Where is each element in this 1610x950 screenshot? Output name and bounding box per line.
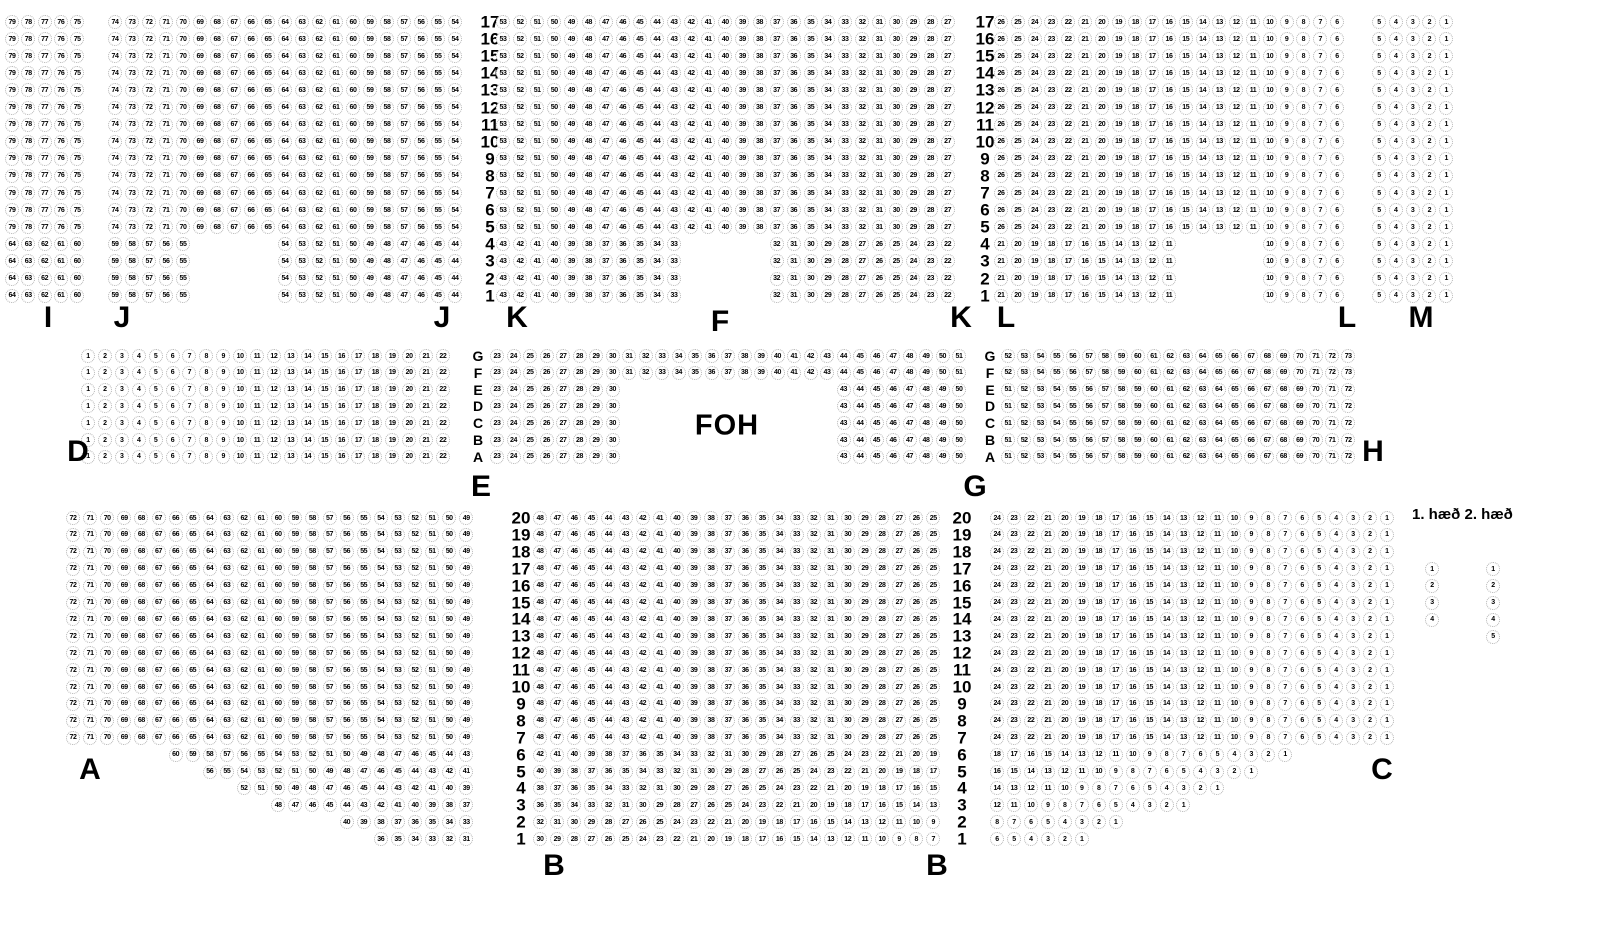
seat[interactable]: 56 xyxy=(414,152,428,166)
seat[interactable]: 46 xyxy=(567,562,581,576)
seat[interactable]: 28 xyxy=(838,272,852,286)
seat[interactable]: 46 xyxy=(305,798,319,812)
seat[interactable]: 22 xyxy=(1061,101,1075,115)
seat[interactable]: 19 xyxy=(385,366,399,380)
seat[interactable]: 30 xyxy=(889,32,903,46)
seat[interactable]: 31 xyxy=(824,596,838,610)
seat[interactable]: 27 xyxy=(892,714,906,728)
seat[interactable]: 13 xyxy=(1212,118,1226,132)
seat[interactable]: 58 xyxy=(380,101,394,115)
seat[interactable]: 63 xyxy=(1179,366,1193,380)
seat[interactable]: 4 xyxy=(1389,186,1403,200)
seat[interactable]: 41 xyxy=(653,629,667,643)
seat[interactable]: 63 xyxy=(295,169,309,183)
seat[interactable]: 70 xyxy=(176,118,190,132)
seat[interactable]: 48 xyxy=(903,366,917,380)
seat[interactable]: 44 xyxy=(442,748,456,762)
seat[interactable]: 3 xyxy=(1406,15,1420,29)
seat[interactable]: 48 xyxy=(919,383,933,397)
seat[interactable]: 46 xyxy=(616,15,630,29)
seat[interactable]: 3 xyxy=(1406,118,1420,132)
seat[interactable]: 28 xyxy=(875,612,889,626)
seat[interactable]: 59 xyxy=(363,169,377,183)
seat[interactable]: 65 xyxy=(186,646,200,660)
seat[interactable]: 9 xyxy=(1280,186,1294,200)
seat[interactable]: 13 xyxy=(1212,152,1226,166)
seat[interactable]: 43 xyxy=(837,416,851,430)
seat[interactable]: 69 xyxy=(117,680,131,694)
seat[interactable]: 8 xyxy=(199,399,213,413)
seat[interactable]: 24 xyxy=(507,399,521,413)
seat[interactable]: 31 xyxy=(824,731,838,745)
seat[interactable]: 6 xyxy=(1295,731,1309,745)
seat[interactable]: 47 xyxy=(397,289,411,303)
seat[interactable]: 48 xyxy=(582,203,596,217)
seat[interactable]: 79 xyxy=(5,186,19,200)
seat[interactable]: 6 xyxy=(1330,237,1344,251)
seat[interactable]: 67 xyxy=(227,186,241,200)
seat[interactable]: 10 xyxy=(1263,289,1277,303)
seat[interactable]: 11 xyxy=(1246,66,1260,80)
seat[interactable]: 63 xyxy=(295,15,309,29)
seat[interactable]: 1 xyxy=(1210,781,1224,795)
seat[interactable]: 45 xyxy=(584,663,598,677)
seat[interactable]: 37 xyxy=(721,545,735,559)
seat[interactable]: 18 xyxy=(1044,254,1058,268)
seat[interactable]: 55 xyxy=(1050,349,1064,363)
seat[interactable]: 25 xyxy=(926,545,940,559)
seat[interactable]: 20 xyxy=(402,450,416,464)
seat[interactable]: 25 xyxy=(926,579,940,593)
seat[interactable]: 66 xyxy=(244,66,258,80)
seat[interactable]: 18 xyxy=(1128,220,1142,234)
seat[interactable]: 28 xyxy=(875,545,889,559)
seat[interactable]: 73 xyxy=(125,101,139,115)
seat[interactable]: 69 xyxy=(117,511,131,525)
seat[interactable]: 38 xyxy=(533,781,547,795)
seat[interactable]: 58 xyxy=(305,731,319,745)
seat[interactable]: 31 xyxy=(653,781,667,795)
seat[interactable]: 50 xyxy=(442,545,456,559)
seat[interactable]: 11 xyxy=(250,383,264,397)
seat[interactable]: 68 xyxy=(1276,399,1290,413)
seat[interactable]: 14 xyxy=(1024,765,1038,779)
seat[interactable]: 28 xyxy=(875,596,889,610)
seat[interactable]: 13 xyxy=(1212,32,1226,46)
seat[interactable]: 10 xyxy=(875,832,889,846)
seat[interactable]: 36 xyxy=(738,528,752,542)
seat[interactable]: 54 xyxy=(448,49,462,63)
seat[interactable]: 37 xyxy=(721,629,735,643)
seat[interactable]: 72 xyxy=(1341,416,1355,430)
seat[interactable]: 31 xyxy=(872,32,886,46)
seat[interactable]: 39 xyxy=(687,714,701,728)
seat[interactable]: 46 xyxy=(616,135,630,149)
seat[interactable]: 25 xyxy=(926,511,940,525)
seat[interactable]: 10 xyxy=(1227,562,1241,576)
seat[interactable]: 22 xyxy=(1061,66,1075,80)
seat[interactable]: 39 xyxy=(735,49,749,63)
seat[interactable]: 18 xyxy=(875,781,889,795)
seat[interactable]: 7 xyxy=(1313,32,1327,46)
seat[interactable]: 49 xyxy=(936,450,950,464)
seat[interactable]: 19 xyxy=(1112,15,1126,29)
seat[interactable]: 74 xyxy=(108,118,122,132)
seat[interactable]: 64 xyxy=(5,237,19,251)
seat[interactable]: 1 xyxy=(1439,203,1453,217)
seat[interactable]: 9 xyxy=(216,383,230,397)
seat[interactable]: 49 xyxy=(459,714,473,728)
seat[interactable]: 16 xyxy=(335,349,349,363)
seat[interactable]: 55 xyxy=(431,32,445,46)
seat[interactable]: 8 xyxy=(1296,289,1310,303)
seat[interactable]: 36 xyxy=(738,697,752,711)
seat[interactable]: 55 xyxy=(357,528,371,542)
seat[interactable]: 35 xyxy=(804,83,818,97)
seat[interactable]: 25 xyxy=(1011,49,1025,63)
seat[interactable]: 2 xyxy=(1422,49,1436,63)
seat[interactable]: 72 xyxy=(142,203,156,217)
seat[interactable]: 30 xyxy=(533,832,547,846)
seat[interactable]: 2 xyxy=(1363,511,1377,525)
seat[interactable]: 75 xyxy=(70,220,84,234)
seat[interactable]: 64 xyxy=(278,15,292,29)
seat[interactable]: 34 xyxy=(821,186,835,200)
seat[interactable]: 50 xyxy=(442,697,456,711)
seat[interactable]: 7 xyxy=(1313,135,1327,149)
seat[interactable]: 41 xyxy=(653,511,667,525)
seat[interactable]: 18 xyxy=(1128,66,1142,80)
seat[interactable]: 7 xyxy=(1313,169,1327,183)
seat[interactable]: 32 xyxy=(855,169,869,183)
seat[interactable]: 15 xyxy=(1095,289,1109,303)
seat[interactable]: 11 xyxy=(1210,714,1224,728)
seat[interactable]: 14 xyxy=(1112,272,1126,286)
seat[interactable]: 76 xyxy=(54,169,68,183)
seat[interactable]: 47 xyxy=(599,203,613,217)
seat[interactable]: 42 xyxy=(684,203,698,217)
seat[interactable]: 31 xyxy=(824,680,838,694)
seat[interactable]: 45 xyxy=(870,399,884,413)
seat[interactable]: 54 xyxy=(1033,349,1047,363)
seat[interactable]: 2 xyxy=(98,433,112,447)
seat[interactable]: 27 xyxy=(892,545,906,559)
seat[interactable]: 44 xyxy=(601,680,615,694)
seat[interactable]: 44 xyxy=(650,15,664,29)
seat[interactable]: 62 xyxy=(312,220,326,234)
seat[interactable]: 1 xyxy=(1380,545,1394,559)
seat[interactable]: 28 xyxy=(924,152,938,166)
seat[interactable]: 8 xyxy=(199,349,213,363)
seat[interactable]: 78 xyxy=(21,152,35,166)
seat[interactable]: 72 xyxy=(66,596,80,610)
seat[interactable]: 62 xyxy=(237,562,251,576)
seat[interactable]: 23 xyxy=(653,832,667,846)
seat[interactable]: 68 xyxy=(210,101,224,115)
seat[interactable]: 74 xyxy=(108,203,122,217)
seat[interactable]: 45 xyxy=(853,366,867,380)
seat[interactable]: 52 xyxy=(408,697,422,711)
seat[interactable]: 72 xyxy=(142,169,156,183)
seat[interactable]: 33 xyxy=(838,49,852,63)
seat[interactable]: 9 xyxy=(1109,765,1123,779)
seat[interactable]: 58 xyxy=(380,169,394,183)
seat[interactable]: 32 xyxy=(704,748,718,762)
seat[interactable]: 8 xyxy=(1126,765,1140,779)
seat[interactable]: 41 xyxy=(701,32,715,46)
seat[interactable]: 18 xyxy=(368,433,382,447)
seat[interactable]: 51 xyxy=(530,169,544,183)
seat[interactable]: 68 xyxy=(134,511,148,525)
seat[interactable]: 52 xyxy=(513,220,527,234)
seat[interactable]: 31 xyxy=(824,663,838,677)
seat[interactable]: 49 xyxy=(919,366,933,380)
seat[interactable]: 33 xyxy=(838,152,852,166)
seat[interactable]: 20 xyxy=(402,383,416,397)
seat[interactable]: 47 xyxy=(599,49,613,63)
seat[interactable]: 22 xyxy=(807,781,821,795)
seat[interactable]: 67 xyxy=(152,596,166,610)
seat[interactable]: 63 xyxy=(295,118,309,132)
seat[interactable]: 15 xyxy=(1143,612,1157,626)
seat[interactable]: 9 xyxy=(1280,203,1294,217)
seat[interactable]: 21 xyxy=(1078,220,1092,234)
seat[interactable]: 48 xyxy=(582,118,596,132)
seat[interactable]: 17 xyxy=(1109,596,1123,610)
seat[interactable]: 5 xyxy=(1007,832,1021,846)
seat[interactable]: 32 xyxy=(807,562,821,576)
seat[interactable]: 5 xyxy=(1312,663,1326,677)
seat[interactable]: 27 xyxy=(941,220,955,234)
seat[interactable]: 64 xyxy=(203,731,217,745)
seat[interactable]: 62 xyxy=(312,186,326,200)
seat[interactable]: 26 xyxy=(540,366,554,380)
seat[interactable]: 11 xyxy=(1246,135,1260,149)
seat[interactable]: 12 xyxy=(1024,781,1038,795)
seat[interactable]: 20 xyxy=(1095,15,1109,29)
seat[interactable]: 4 xyxy=(1227,748,1241,762)
seat[interactable]: 57 xyxy=(397,169,411,183)
seat[interactable]: 24 xyxy=(670,815,684,829)
seat[interactable]: 35 xyxy=(804,152,818,166)
seat[interactable]: 22 xyxy=(1061,32,1075,46)
seat[interactable]: 51 xyxy=(1001,450,1015,464)
seat[interactable]: 55 xyxy=(431,66,445,80)
seat[interactable]: 72 xyxy=(66,714,80,728)
seat[interactable]: 54 xyxy=(448,220,462,234)
seat[interactable]: 52 xyxy=(237,781,251,795)
seat[interactable]: 44 xyxy=(650,220,664,234)
seat[interactable]: 28 xyxy=(875,579,889,593)
seat[interactable]: 14 xyxy=(1112,237,1126,251)
seat[interactable]: 32 xyxy=(807,663,821,677)
seat[interactable]: 52 xyxy=(513,49,527,63)
seat[interactable]: 34 xyxy=(821,15,835,29)
seat[interactable]: 7 xyxy=(1109,781,1123,795)
seat[interactable]: 60 xyxy=(1147,433,1161,447)
seat[interactable]: 49 xyxy=(357,748,371,762)
seat[interactable]: 63 xyxy=(295,83,309,97)
seat[interactable]: 71 xyxy=(159,152,173,166)
seat[interactable]: 38 xyxy=(738,349,752,363)
seat[interactable]: 70 xyxy=(1293,366,1307,380)
seat[interactable]: 1 xyxy=(1439,101,1453,115)
seat[interactable]: 47 xyxy=(550,731,564,745)
seat[interactable]: 77 xyxy=(38,32,52,46)
seat[interactable]: 38 xyxy=(753,220,767,234)
seat[interactable]: 75 xyxy=(70,66,84,80)
seat[interactable]: 65 xyxy=(186,528,200,542)
seat[interactable]: 17 xyxy=(1109,646,1123,660)
seat[interactable]: 22 xyxy=(1061,15,1075,29)
seat[interactable]: 48 xyxy=(582,49,596,63)
seat[interactable]: 49 xyxy=(564,186,578,200)
seat[interactable]: 70 xyxy=(100,562,114,576)
seat[interactable]: 78 xyxy=(21,118,35,132)
seat[interactable]: 60 xyxy=(346,152,360,166)
seat[interactable]: 67 xyxy=(1260,450,1274,464)
seat[interactable]: 55 xyxy=(176,254,190,268)
seat[interactable]: 30 xyxy=(889,135,903,149)
seat[interactable]: 73 xyxy=(125,220,139,234)
seat[interactable]: 35 xyxy=(804,186,818,200)
seat[interactable]: 40 xyxy=(718,169,732,183)
seat[interactable]: 15 xyxy=(1095,237,1109,251)
seat[interactable]: 35 xyxy=(755,596,769,610)
seat[interactable]: 29 xyxy=(589,450,603,464)
seat[interactable]: 61 xyxy=(329,118,343,132)
seat[interactable]: 61 xyxy=(329,169,343,183)
seat[interactable]: 34 xyxy=(772,629,786,643)
seat[interactable]: 31 xyxy=(687,765,701,779)
seat[interactable]: 27 xyxy=(556,366,570,380)
seat[interactable]: 33 xyxy=(790,545,804,559)
seat[interactable]: 76 xyxy=(54,135,68,149)
seat[interactable]: 26 xyxy=(909,731,923,745)
seat[interactable]: 33 xyxy=(838,203,852,217)
seat[interactable]: 65 xyxy=(261,135,275,149)
seat[interactable]: 18 xyxy=(1044,289,1058,303)
seat[interactable]: 1 xyxy=(1380,714,1394,728)
seat[interactable]: 15 xyxy=(318,433,332,447)
seat[interactable]: 36 xyxy=(738,612,752,626)
seat[interactable]: 36 xyxy=(738,646,752,660)
seat[interactable]: 75 xyxy=(70,186,84,200)
seat[interactable]: 51 xyxy=(329,237,343,251)
seat[interactable]: 19 xyxy=(1028,237,1042,251)
seat[interactable]: 22 xyxy=(1061,83,1075,97)
seat[interactable]: 12 xyxy=(1145,272,1159,286)
seat[interactable]: 35 xyxy=(755,663,769,677)
seat[interactable]: 45 xyxy=(431,272,445,286)
seat[interactable]: 49 xyxy=(459,731,473,745)
seat[interactable]: 48 xyxy=(533,528,547,542)
seat[interactable]: 51 xyxy=(530,186,544,200)
seat[interactable]: 33 xyxy=(667,254,681,268)
seat[interactable]: 49 xyxy=(919,349,933,363)
seat[interactable]: 23 xyxy=(755,798,769,812)
seat[interactable]: 66 xyxy=(1244,399,1258,413)
seat[interactable]: 54 xyxy=(374,629,388,643)
seat[interactable]: 41 xyxy=(530,254,544,268)
seat[interactable]: 30 xyxy=(889,203,903,217)
seat[interactable]: 14 xyxy=(1196,169,1210,183)
seat[interactable]: 28 xyxy=(567,832,581,846)
seat[interactable]: 47 xyxy=(550,697,564,711)
seat[interactable]: 19 xyxy=(385,450,399,464)
seat[interactable]: 1 xyxy=(1380,562,1394,576)
seat[interactable]: 52 xyxy=(408,545,422,559)
seat[interactable]: 38 xyxy=(704,646,718,660)
seat[interactable]: 2 xyxy=(1422,169,1436,183)
seat[interactable]: 46 xyxy=(870,366,884,380)
seat[interactable]: 72 xyxy=(66,680,80,694)
seat[interactable]: 29 xyxy=(589,366,603,380)
seat[interactable]: 18 xyxy=(841,798,855,812)
seat[interactable]: 76 xyxy=(54,152,68,166)
seat[interactable]: 43 xyxy=(619,714,633,728)
seat[interactable]: 43 xyxy=(619,562,633,576)
seat[interactable]: 42 xyxy=(684,15,698,29)
seat[interactable]: 25 xyxy=(523,450,537,464)
seat[interactable]: 1 xyxy=(1439,15,1453,29)
seat[interactable]: 55 xyxy=(1066,399,1080,413)
seat[interactable]: 42 xyxy=(513,272,527,286)
seat[interactable]: 46 xyxy=(567,646,581,660)
seat[interactable]: 50 xyxy=(346,272,360,286)
seat[interactable]: 25 xyxy=(926,697,940,711)
seat[interactable]: 22 xyxy=(704,815,718,829)
seat[interactable]: 71 xyxy=(1325,399,1339,413)
seat[interactable]: 7 xyxy=(1007,815,1021,829)
seat[interactable]: 11 xyxy=(1075,765,1089,779)
seat[interactable]: 78 xyxy=(21,83,35,97)
seat[interactable]: 5 xyxy=(1312,562,1326,576)
seat[interactable]: 30 xyxy=(841,562,855,576)
seat[interactable]: 42 xyxy=(636,663,650,677)
seat[interactable]: 26 xyxy=(540,433,554,447)
seat[interactable]: 66 xyxy=(1244,383,1258,397)
seat[interactable]: 33 xyxy=(838,32,852,46)
seat[interactable]: 43 xyxy=(619,680,633,694)
seat[interactable]: 11 xyxy=(1246,15,1260,29)
seat[interactable]: 53 xyxy=(391,646,405,660)
seat[interactable]: 52 xyxy=(1017,416,1031,430)
seat[interactable]: 62 xyxy=(312,203,326,217)
seat[interactable]: 12 xyxy=(1193,646,1207,660)
seat[interactable]: 54 xyxy=(1050,383,1064,397)
seat[interactable]: 56 xyxy=(340,612,354,626)
seat[interactable]: 26 xyxy=(994,135,1008,149)
seat[interactable]: 49 xyxy=(936,399,950,413)
seat[interactable]: 48 xyxy=(582,169,596,183)
seat[interactable]: 2 xyxy=(1363,612,1377,626)
seat[interactable]: 32 xyxy=(855,101,869,115)
seat[interactable]: 37 xyxy=(584,765,598,779)
seat[interactable]: 50 xyxy=(346,254,360,268)
seat[interactable]: 21 xyxy=(1041,612,1055,626)
seat[interactable]: 26 xyxy=(872,254,886,268)
seat[interactable]: 2 xyxy=(1363,731,1377,745)
seat[interactable]: 45 xyxy=(584,697,598,711)
seat[interactable]: 51 xyxy=(530,83,544,97)
seat[interactable]: 6 xyxy=(1330,66,1344,80)
seat[interactable]: 46 xyxy=(616,83,630,97)
seat[interactable]: 68 xyxy=(1260,366,1274,380)
seat[interactable]: 42 xyxy=(804,366,818,380)
seat[interactable]: 64 xyxy=(278,83,292,97)
seat[interactable]: 47 xyxy=(550,511,564,525)
